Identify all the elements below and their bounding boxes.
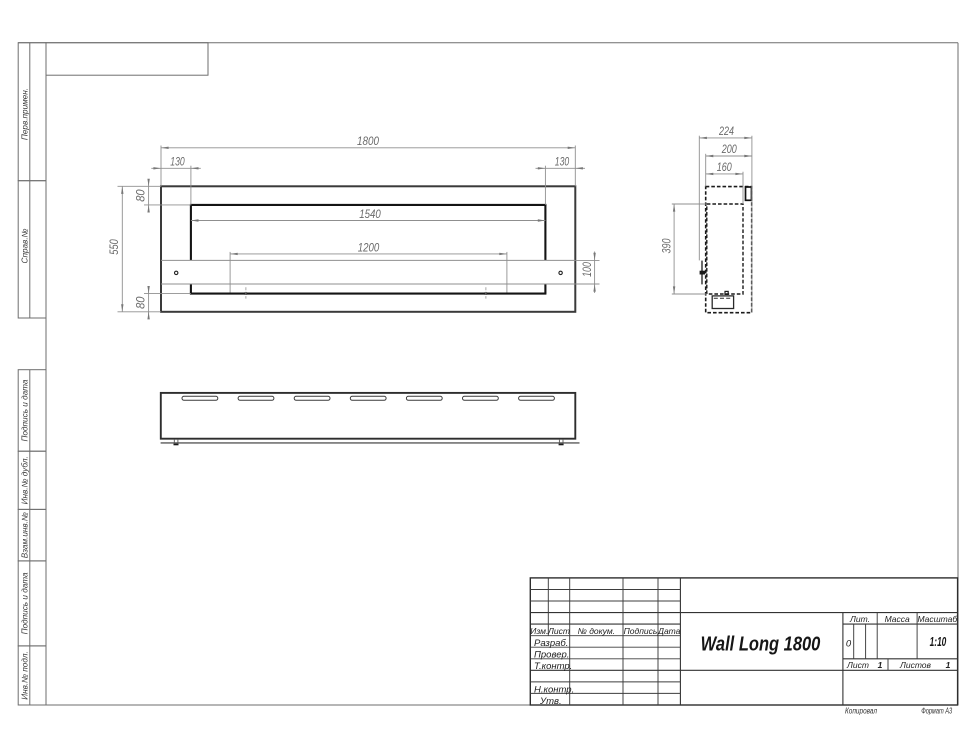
svg-text:Wall Long 1800: Wall Long 1800: [701, 632, 821, 655]
svg-text:1: 1: [946, 660, 951, 670]
svg-text:1:10: 1:10: [930, 635, 947, 649]
svg-text:Инв.№ дубл.: Инв.№ дубл.: [20, 456, 29, 504]
svg-text:80: 80: [133, 189, 147, 202]
svg-text:Т.контр.: Т.контр.: [534, 661, 572, 672]
svg-text:Подпись: Подпись: [624, 626, 658, 636]
svg-text:80: 80: [133, 296, 147, 309]
svg-text:100: 100: [580, 262, 594, 277]
svg-text:Формат А3: Формат А3: [921, 707, 952, 716]
svg-text:Листов: Листов: [899, 660, 932, 670]
svg-text:Разраб.: Разраб.: [534, 638, 568, 649]
svg-text:Взам.инв.№: Взам.инв.№: [20, 512, 29, 558]
svg-text:Провер.: Провер.: [534, 649, 569, 660]
svg-text:Справ.№: Справ.№: [20, 228, 29, 263]
svg-text:Дата: Дата: [657, 626, 681, 636]
svg-text:550: 550: [107, 239, 121, 255]
svg-text:1800: 1800: [357, 134, 379, 148]
svg-text:0: 0: [846, 639, 852, 650]
svg-text:Лист: Лист: [846, 660, 869, 670]
svg-text:Масса: Масса: [885, 614, 910, 624]
svg-text:Н.контр.: Н.контр.: [534, 684, 574, 695]
svg-text:Подпись и дата: Подпись и дата: [20, 572, 29, 634]
svg-text:Перв.примен.: Перв.примен.: [20, 88, 29, 140]
svg-text:Утв.: Утв.: [539, 696, 562, 707]
svg-text:Лит.: Лит.: [849, 614, 870, 624]
svg-text:130: 130: [555, 154, 570, 168]
svg-text:Копировал: Копировал: [845, 707, 877, 716]
svg-text:Изм.: Изм.: [530, 626, 548, 636]
svg-text:1: 1: [878, 660, 883, 670]
svg-text:390: 390: [660, 238, 674, 253]
svg-text:1200: 1200: [358, 240, 380, 254]
svg-text:224: 224: [718, 124, 734, 138]
svg-text:Лист: Лист: [547, 626, 570, 636]
svg-text:1540: 1540: [359, 207, 381, 221]
svg-text:Подпись и дата: Подпись и дата: [20, 379, 29, 441]
svg-text:Масштаб: Масштаб: [917, 614, 958, 624]
svg-text:Инв.№ подл.: Инв.№ подл.: [20, 651, 29, 700]
svg-text:130: 130: [170, 154, 185, 168]
svg-text:160: 160: [717, 160, 732, 174]
svg-text:№ докум.: № докум.: [578, 626, 615, 636]
svg-text:200: 200: [721, 142, 737, 156]
